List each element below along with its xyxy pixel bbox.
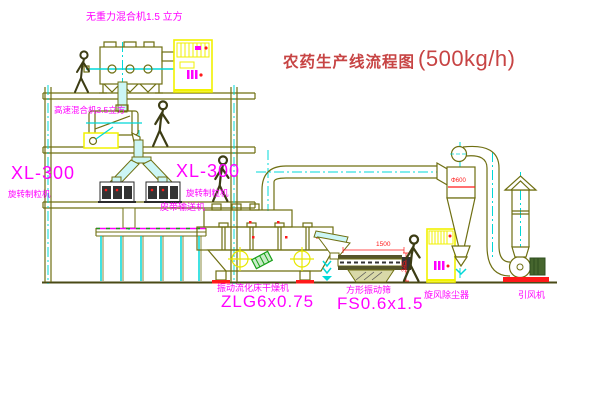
label-gravity-mixer: 无重力混合机1.5 立方 [86,13,183,23]
cabinet-display-icon [434,261,445,270]
label-high-speed-mixer: 高速混合机3.5立方 [54,106,125,115]
person-figure [404,236,420,281]
flow-arrow-icon [322,261,332,281]
control-cabinet-bottom [427,229,455,282]
label-xl300-center-model: XL-300 [176,162,240,180]
induced-draft-fan [503,257,549,283]
cad-flow-diagram: 农药生产线流程图 (500kg/h) 无重力混合机1.5 立方 高速混合机3.5… [0,0,600,403]
dim-cyclone-dia: Φ600 [451,178,466,184]
title-chinese: 农药生产线流程图 [283,50,415,72]
dim-sieve-length: 1500 [376,242,390,249]
gravity-free-mixer [84,42,184,93]
granulator-discharge-chute [123,208,135,228]
dryer-discharge-cone [314,231,350,259]
label-belt-conveyor: 皮带输送机 [160,203,205,212]
granulator-left [98,177,136,202]
fluid-bed-dryer [197,204,333,280]
label-fan: 引风机 [518,291,545,300]
dryer-motor [252,251,273,268]
control-cabinet-top [174,40,212,92]
person-figure [153,101,168,146]
exhaust-duct [262,166,437,210]
diagram-title: 农药生产线流程图 (500kg/h) [283,46,515,72]
label-xl300-center-name: 旋转制粒机 [186,189,229,198]
label-sieve-model: FS0.6x1.5 [337,295,424,312]
label-xl300-left-name: 旋转制粒机 [8,190,51,199]
label-dryer-model: ZLG6x0.75 [221,293,314,310]
label-xl300-left-model: XL-300 [11,164,75,182]
cyclone-outlet-arrow [456,269,466,274]
title-capacity: (500kg/h) [418,46,515,72]
label-cyclone: 旋风除尘器 [424,291,469,300]
dim-sieve-height: 345 [402,261,409,272]
belt-conveyor [96,228,206,281]
